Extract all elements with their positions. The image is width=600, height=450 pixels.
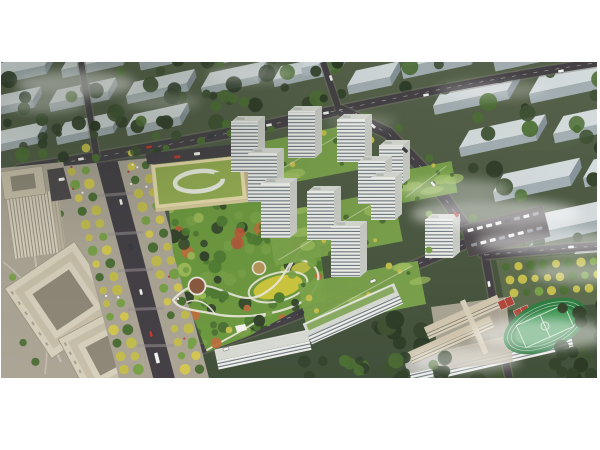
vignette-overlay — [1, 62, 597, 378]
overlay — [1, 62, 597, 378]
aerial-site-rendering — [1, 62, 597, 378]
screenshot-page — [0, 0, 600, 450]
rendering-frame — [1, 62, 597, 378]
